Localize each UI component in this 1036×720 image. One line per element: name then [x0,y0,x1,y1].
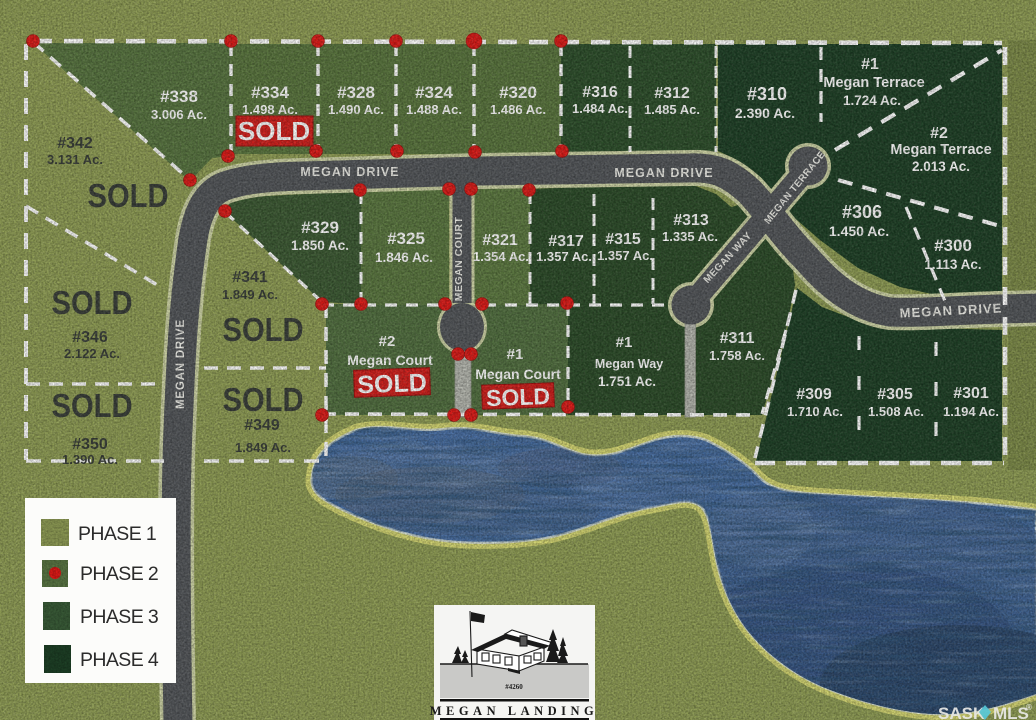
svg-text:PHASE 4: PHASE 4 [80,649,159,671]
svg-text:®: ® [1026,703,1032,712]
svg-text:SASK: SASK [938,704,986,720]
svg-text:MLS: MLS [993,704,1029,720]
svg-text:#4260: #4260 [505,683,523,691]
svg-text:PHASE 3: PHASE 3 [80,606,158,628]
svg-text:MEGAN LANDING: MEGAN LANDING [430,704,599,718]
svg-text:PHASE 1: PHASE 1 [78,523,156,545]
svg-text:PHASE 2: PHASE 2 [80,563,158,585]
